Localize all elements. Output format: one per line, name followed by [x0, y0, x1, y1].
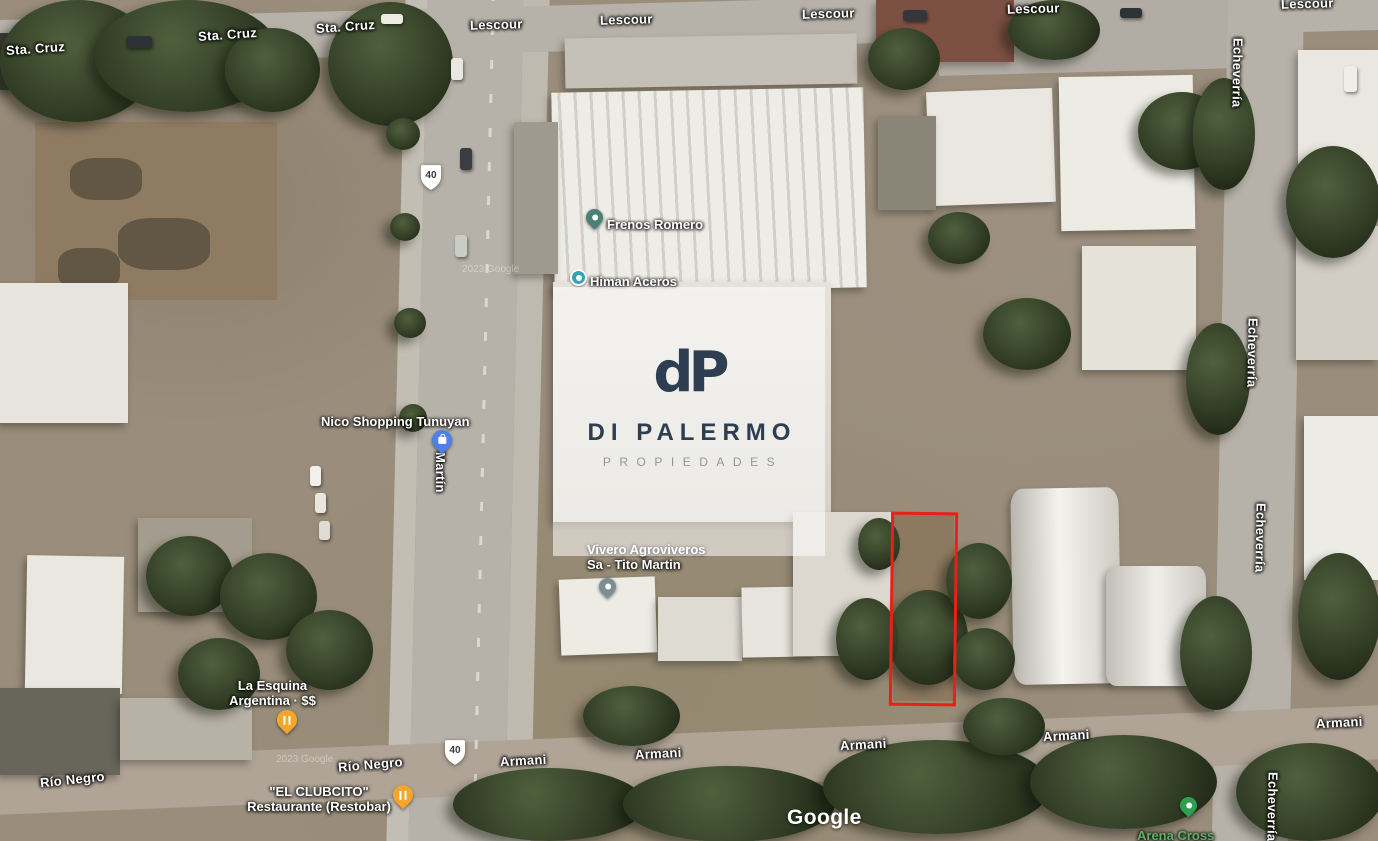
building-roof	[1082, 246, 1196, 370]
street-label-armani: Armani	[500, 752, 547, 769]
car	[455, 235, 467, 257]
la-esquina-pin-icon[interactable]	[273, 706, 301, 734]
shopping-bag-icon	[438, 437, 446, 444]
di-palermo-logo-icon: dP	[653, 345, 724, 401]
car	[310, 466, 321, 486]
car	[381, 14, 403, 24]
watermark-title: DI PALERMO	[588, 419, 797, 447]
street-label-martin: Martín	[433, 452, 448, 493]
tree	[394, 308, 426, 338]
tree	[928, 212, 990, 264]
street-label-lescour: Lescour	[470, 16, 523, 32]
debris	[70, 158, 142, 200]
car	[903, 10, 927, 21]
route-40-shield: 40	[444, 739, 466, 767]
street-label-lescour: Lescour	[600, 11, 653, 27]
building-roof	[878, 116, 936, 210]
tree	[453, 768, 645, 841]
car	[1120, 8, 1142, 18]
street-label-armani: Armani	[1043, 727, 1090, 744]
building-roof	[0, 688, 120, 775]
building-roof	[926, 88, 1056, 206]
tree	[1180, 596, 1252, 710]
street-label-armani: Armani	[635, 745, 682, 762]
debris	[118, 218, 210, 270]
street-label-armani: Armani	[1316, 714, 1363, 731]
car	[126, 36, 152, 48]
building-roof	[658, 597, 742, 661]
tile-credit: 2023 Google	[462, 264, 519, 275]
tree	[390, 213, 420, 241]
car	[315, 493, 326, 513]
street-label-echeverria: Echeverría	[1229, 38, 1245, 108]
tree	[983, 298, 1071, 370]
street-label-echeverria: Echeverría	[1264, 772, 1280, 841]
tree	[953, 628, 1015, 690]
car	[319, 521, 330, 540]
poi-label-nico-shopping[interactable]: Nico Shopping Tunuyan	[321, 414, 470, 429]
building-roof	[25, 555, 124, 694]
svg-text:40: 40	[425, 170, 437, 181]
tree	[386, 118, 420, 150]
street-label-lescour: Lescour	[802, 5, 855, 21]
tree	[963, 698, 1045, 755]
street-label-echeverria: Echeverría	[1244, 318, 1260, 388]
route-40-shield: 40	[420, 164, 442, 192]
tree	[1236, 743, 1378, 841]
warehouse-ribbed-roof	[551, 87, 866, 292]
street-label-echeverria: Echeverría	[1252, 503, 1268, 573]
tree	[1298, 553, 1378, 680]
pin-dot	[1184, 801, 1192, 809]
poi-label-arena-cross[interactable]: Arena Cross	[1137, 828, 1214, 841]
building-roof	[0, 283, 128, 423]
street-label-lescour: Lescour	[1007, 0, 1060, 16]
restaurant-icon	[283, 716, 291, 725]
car	[451, 58, 463, 80]
street-label-lescour: Lescour	[1281, 0, 1334, 12]
tree	[583, 686, 680, 746]
poi-label-la-esquina[interactable]: La Esquina Argentina · $$	[225, 678, 320, 708]
watermark-subtitle: PROPIEDADES	[603, 455, 783, 469]
tree	[1286, 146, 1378, 258]
restaurant-icon	[399, 791, 407, 800]
tree	[1193, 78, 1255, 190]
satellite-map[interactable]: Sta. Cruz Sta. Cruz Sta. Cruz Lescour Le…	[0, 0, 1378, 841]
street-label-armani: Armani	[840, 736, 887, 753]
tree	[868, 28, 940, 90]
pin-dot	[590, 213, 598, 221]
car	[460, 148, 472, 170]
svg-text:40: 40	[449, 745, 461, 756]
building-roof	[565, 33, 858, 88]
himan-aceros-dot-icon[interactable]	[570, 269, 587, 286]
tile-credit: 2023 Google	[276, 754, 333, 765]
car	[1344, 66, 1357, 92]
di-palermo-watermark: dP DI PALERMO PROPIEDADES	[553, 287, 825, 556]
google-logo[interactable]: Google	[787, 806, 862, 830]
poi-label-frenos-romero[interactable]: Frenos Romero	[607, 217, 703, 232]
curved-warehouse-roof	[1010, 487, 1121, 685]
building-roof	[514, 122, 558, 274]
property-highlight-outline	[889, 512, 958, 707]
tree	[1186, 323, 1250, 435]
poi-label-el-clubcito[interactable]: "EL CLUBCITO" Restaurante (Restobar)	[246, 784, 392, 814]
pin-dot	[603, 582, 611, 590]
